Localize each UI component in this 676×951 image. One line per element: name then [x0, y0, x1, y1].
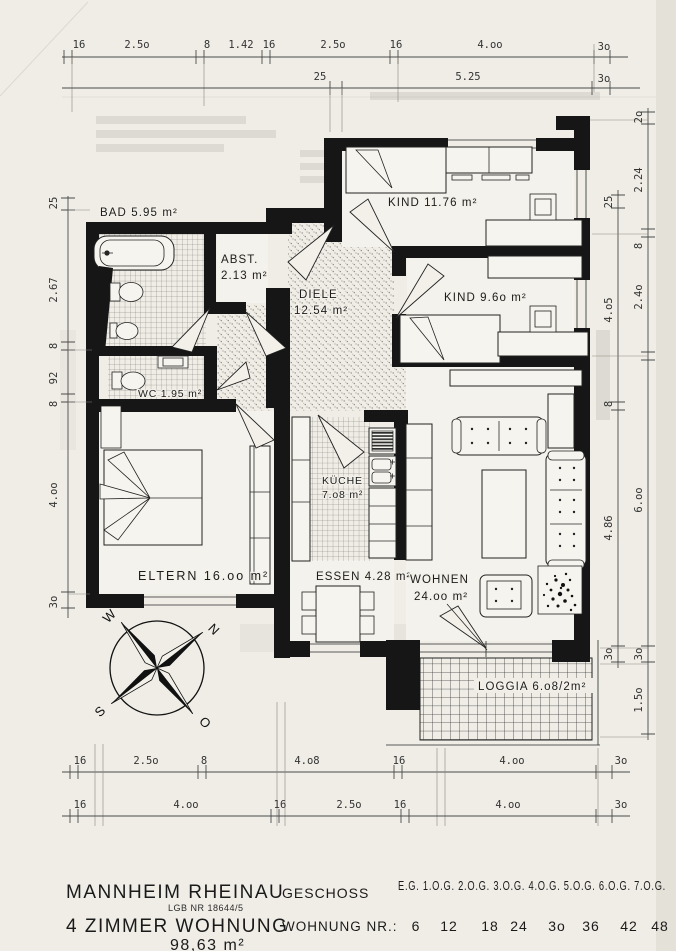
window-right-kind2 — [574, 280, 590, 328]
svg-text:8: 8 — [204, 39, 210, 51]
compass-south-label: S — [92, 703, 109, 720]
kitchen-counter — [369, 488, 396, 558]
window-eltern — [144, 594, 236, 608]
svg-text:12.54 m²: 12.54 m² — [294, 305, 348, 317]
shelf-kind2 — [488, 256, 582, 278]
svg-text:2.5o: 2.5o — [133, 755, 158, 767]
kitchen-sink — [369, 456, 396, 486]
title-city: MANNHEIM RHEINAU — [66, 882, 284, 903]
cabinet-wohnen — [548, 394, 574, 448]
floor-values: E.G. 1.O.G. 2.O.G. 3.O.G. 4.O.G. 5.O.G. … — [398, 879, 666, 893]
title-block: MANNHEIM RHEINAU LGB NR 18644/5 4 ZIMMER… — [66, 879, 669, 951]
room-label-kind1: KIND 11.76 m² — [388, 197, 478, 209]
svg-text:25: 25 — [314, 71, 327, 83]
svg-text:25: 25 — [603, 196, 615, 209]
armchair — [480, 575, 532, 617]
title-area: 98,63 m² — [170, 937, 245, 951]
svg-text:3o: 3o — [598, 41, 611, 53]
svg-text:16: 16 — [74, 755, 87, 767]
room-label-loggia: LOGGIA 6.o8/2m² — [478, 681, 587, 693]
svg-text:3o: 3o — [603, 648, 615, 661]
toilet-bad — [110, 283, 143, 302]
washbasin-wc — [158, 356, 188, 368]
svg-text:3o: 3o — [598, 73, 611, 85]
floor-label: GESCHOSS — [282, 885, 369, 901]
svg-text:2.67: 2.67 — [48, 277, 60, 302]
svg-text:2.5o: 2.5o — [320, 39, 345, 51]
svg-text:6: 6 — [412, 918, 421, 934]
svg-text:8: 8 — [48, 343, 60, 349]
svg-text:8: 8 — [201, 755, 207, 767]
stove — [369, 428, 396, 454]
svg-text:92: 92 — [48, 372, 60, 385]
sideboard-wohnen — [406, 424, 432, 560]
room-label-wohnen: WOHNEN — [410, 574, 469, 586]
svg-text:3o: 3o — [615, 799, 628, 811]
svg-text:25: 25 — [48, 197, 60, 210]
room-label-kind2: KIND 9.6o m² — [444, 292, 527, 304]
svg-text:48: 48 — [651, 918, 669, 934]
svg-text:8: 8 — [633, 243, 645, 249]
floor-plan-drawing: BAD 5.95 m² ABST. 2.13 m² DIELE 12.54 m²… — [0, 0, 676, 951]
svg-text:6.oo: 6.oo — [633, 487, 645, 512]
svg-text:2.13 m²: 2.13 m² — [221, 270, 268, 282]
wardrobe-eltern — [250, 446, 270, 584]
title-type: 4 ZIMMER WOHNUNG — [66, 916, 288, 937]
svg-text:3o: 3o — [633, 648, 645, 661]
svg-text:4.oo: 4.oo — [48, 482, 60, 507]
dimension-chain-right: 25 4.o5 8 4.86 3o 2o 2.24 8 2.4o 6.oo 3o… — [590, 108, 655, 740]
washbasin-bad — [110, 323, 138, 340]
svg-text:2o: 2o — [633, 111, 645, 124]
coffee-table — [482, 470, 526, 558]
svg-text:2.5o: 2.5o — [336, 799, 361, 811]
svg-text:3o: 3o — [615, 755, 628, 767]
svg-text:16: 16 — [394, 799, 407, 811]
bed-kind1 — [346, 147, 446, 193]
svg-text:42: 42 — [620, 918, 638, 934]
svg-text:1.42: 1.42 — [228, 39, 253, 51]
svg-text:2.5o: 2.5o — [124, 39, 149, 51]
bathtub — [94, 236, 174, 270]
svg-text:7.o8 m²: 7.o8 m² — [322, 489, 363, 501]
compass-north-label: N — [205, 621, 222, 638]
room-label-diele: DIELE — [299, 289, 338, 301]
bed-kind2 — [400, 315, 500, 363]
window-essen — [310, 641, 360, 657]
kitchen-cupboard — [292, 417, 310, 561]
room-label-abst: ABST. — [221, 254, 258, 266]
svg-text:8: 8 — [603, 401, 615, 407]
wardrobe-kind1 — [446, 147, 532, 180]
svg-text:8: 8 — [48, 401, 60, 407]
room-label-wc: WC 1.95 m² — [138, 388, 202, 400]
svg-text:18: 18 — [481, 918, 499, 934]
title-register: LGB NR 18644/5 — [168, 903, 244, 913]
svg-text:16: 16 — [274, 799, 287, 811]
svg-text:16: 16 — [393, 755, 406, 767]
svg-text:24: 24 — [510, 918, 528, 934]
shelf-wohnen — [450, 370, 582, 386]
svg-text:4.oo: 4.oo — [477, 39, 502, 51]
svg-text:4.o8: 4.o8 — [294, 755, 319, 767]
svg-text:16: 16 — [74, 799, 87, 811]
room-label-bad: BAD 5.95 m² — [100, 207, 178, 219]
apartment-label: WOHNUNG NR.: — [282, 919, 398, 934]
dresser-eltern — [101, 406, 121, 448]
svg-text:4.oo: 4.oo — [495, 799, 520, 811]
window-right-kind1 — [574, 170, 590, 218]
bed-eltern — [100, 450, 202, 545]
sofa-two-seat — [452, 417, 546, 455]
svg-text:12: 12 — [440, 918, 458, 934]
svg-text:4.oo: 4.oo — [173, 799, 198, 811]
compass-rose: W N S O — [92, 606, 223, 731]
svg-text:36: 36 — [582, 918, 600, 934]
compass-east-label: O — [196, 714, 214, 732]
svg-text:3o: 3o — [48, 596, 60, 609]
svg-text:1.5o: 1.5o — [633, 687, 645, 712]
svg-text:5.25: 5.25 — [455, 71, 480, 83]
abst-floor — [217, 234, 268, 303]
svg-text:3o: 3o — [548, 918, 566, 934]
room-label-kueche: KÜCHE — [322, 475, 363, 487]
room-label-essen: ESSEN 4.28 m² — [316, 571, 411, 583]
svg-text:4.86: 4.86 — [603, 515, 615, 540]
floor-plan-scan: BAD 5.95 m² ABST. 2.13 m² DIELE 12.54 m²… — [0, 0, 676, 951]
svg-text:16: 16 — [73, 39, 86, 51]
svg-text:4.oo: 4.oo — [499, 755, 524, 767]
plant — [538, 566, 582, 614]
svg-text:2.4o: 2.4o — [633, 284, 645, 309]
loggia-floor — [420, 658, 592, 740]
svg-text:16: 16 — [390, 39, 403, 51]
svg-text:16: 16 — [263, 39, 276, 51]
svg-text:4.o5: 4.o5 — [603, 297, 615, 322]
sofa-three-seat — [546, 451, 586, 569]
room-label-eltern: ELTERN 16.oo m² — [138, 569, 269, 583]
svg-text:24.oo m²: 24.oo m² — [414, 591, 468, 603]
compass-west-label: W — [100, 606, 120, 626]
svg-text:2.24: 2.24 — [633, 167, 645, 192]
